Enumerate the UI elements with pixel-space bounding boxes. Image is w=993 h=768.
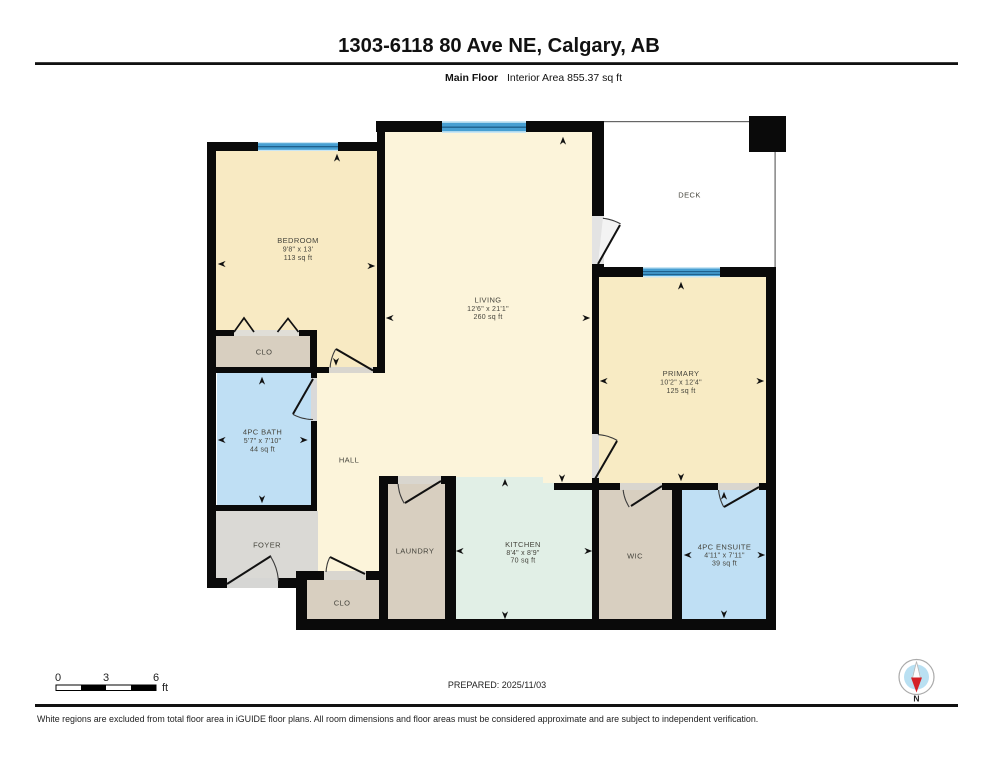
svg-text:BEDROOM: BEDROOM — [277, 236, 319, 245]
svg-text:PREPARED: 2025/11/03: PREPARED: 2025/11/03 — [448, 680, 546, 690]
svg-text:3: 3 — [103, 672, 109, 684]
svg-text:0: 0 — [55, 672, 61, 684]
svg-text:125 sq ft: 125 sq ft — [666, 388, 695, 395]
svg-text:44 sq ft: 44 sq ft — [250, 447, 275, 454]
svg-text:FOYER: FOYER — [253, 541, 281, 550]
svg-text:1303-6118 80 Ave NE, Calgary,: 1303-6118 80 Ave NE, Calgary, AB — [338, 35, 660, 57]
svg-text:LAUNDRY: LAUNDRY — [396, 547, 435, 556]
svg-text:4PC ENSUITE: 4PC ENSUITE — [698, 542, 752, 551]
svg-text:PRIMARY: PRIMARY — [663, 369, 700, 378]
svg-text:4'11" x 7'11": 4'11" x 7'11" — [704, 553, 745, 560]
svg-text:N: N — [913, 694, 919, 704]
svg-text:6: 6 — [153, 672, 159, 684]
svg-text:4PC BATH: 4PC BATH — [243, 428, 282, 437]
svg-text:KITCHEN: KITCHEN — [505, 540, 541, 549]
svg-text:5'7" x 7'10": 5'7" x 7'10" — [244, 438, 282, 445]
svg-text:260 sq ft: 260 sq ft — [473, 314, 502, 321]
svg-text:CLO: CLO — [256, 348, 273, 357]
svg-text:113 sq ft: 113 sq ft — [284, 255, 313, 262]
svg-text:DECK: DECK — [678, 191, 700, 200]
svg-text:LIVING: LIVING — [475, 296, 502, 305]
svg-text:HALL: HALL — [339, 456, 359, 465]
svg-text:8'4" x 8'9": 8'4" x 8'9" — [506, 550, 540, 557]
svg-text:White regions are excluded fro: White regions are excluded from total fl… — [37, 714, 758, 724]
svg-text:CLO: CLO — [334, 599, 351, 608]
svg-text:12'6" x 21'1": 12'6" x 21'1" — [467, 306, 509, 313]
svg-text:WIC: WIC — [627, 552, 643, 561]
svg-text:70 sq ft: 70 sq ft — [511, 558, 536, 565]
svg-text:Interior Area 855.37 sq ft: Interior Area 855.37 sq ft — [507, 72, 622, 84]
svg-text:9'8" x 13': 9'8" x 13' — [283, 247, 314, 254]
svg-text:Main Floor: Main Floor — [445, 72, 498, 84]
svg-text:10'2" x 12'4": 10'2" x 12'4" — [660, 380, 702, 387]
svg-text:ft: ft — [162, 682, 168, 694]
svg-text:39 sq ft: 39 sq ft — [712, 561, 737, 568]
